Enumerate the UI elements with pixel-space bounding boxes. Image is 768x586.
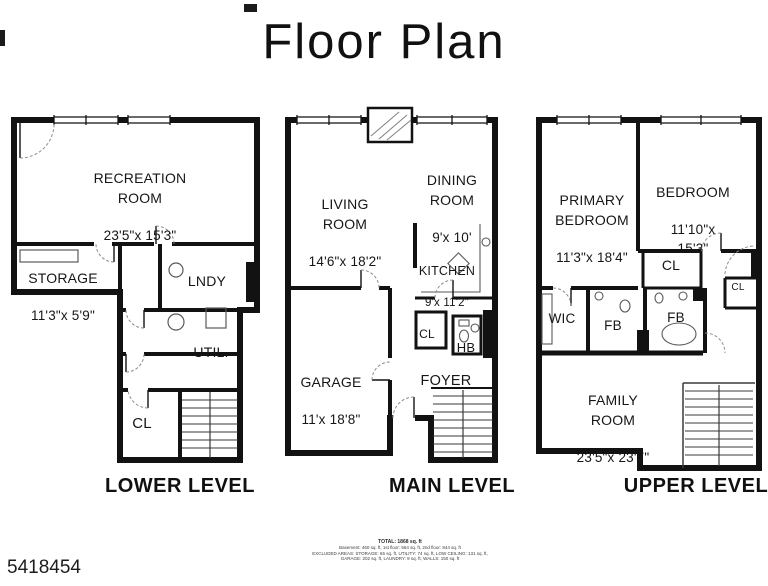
room-label-cl-lower: CL [132, 416, 152, 431]
main-level-label: MAIN LEVEL [389, 475, 515, 498]
room-label-living: LIVING ROOM 14'6"x 18'2" [309, 176, 382, 289]
upper-level-plan: PRIMARY BEDROOM 11'3"x 18'4" BEDROOM 11'… [533, 106, 765, 504]
wall-chase [246, 262, 257, 302]
room-label-wic: WIC [549, 311, 576, 326]
chimney [368, 108, 412, 142]
room-label-hb: HB [457, 340, 475, 355]
windows [54, 115, 170, 125]
excluded-areas-line-2: GARAGE: 202 sq. ft, LAUNDRY: 9 sq. ft, W… [30, 556, 768, 562]
page-title: Floor Plan [0, 14, 768, 70]
room-label-fb2: FB [667, 310, 685, 325]
room-label-cl-main: CL [419, 327, 435, 342]
stairs [182, 392, 238, 458]
wall-chase [483, 310, 495, 358]
room-label-primary: PRIMARY BEDROOM 11'3"x 18'4" [555, 172, 629, 285]
room-label-storage: STORAGE 11'3"x 5'9" [28, 250, 98, 343]
area-summary: TOTAL: 1868 sq. ft Basement: 460 sq. ft,… [30, 539, 768, 562]
room-label-lndy: LNDY [188, 274, 226, 289]
room-label-family: FAMILY ROOM 23'5"x 23'7" [577, 372, 650, 485]
upper-level-label: UPPER LEVEL [624, 475, 768, 498]
lower-level-plan: RECREATION ROOM 23'5"x 15'3" STORAGE 11'… [8, 112, 260, 504]
room-label-util: UTIL. [193, 345, 228, 360]
floor-plan-page: Floor Plan [0, 0, 768, 586]
listing-number: 5418454 [7, 557, 81, 579]
room-label-recreation: RECREATION ROOM 23'5"x 15'3" [94, 150, 187, 263]
front-door-gap [393, 414, 415, 423]
room-label-garage: GARAGE 11'x 18'8" [300, 354, 361, 447]
scan-artifact-top [244, 4, 257, 12]
room-label-cl-bedroom: CL [662, 258, 680, 273]
stairs [433, 390, 493, 458]
main-level-plan: LIVING ROOM 14'6"x 18'2" DINING ROOM 9'x… [283, 106, 505, 504]
room-label-cl-hall: CL [731, 282, 744, 293]
lower-level-label: LOWER LEVEL [105, 475, 255, 498]
stairs [683, 383, 755, 468]
room-label-kitchen: KITCHEN 9'x 11'2" [419, 246, 475, 328]
room-label-foyer: FOYER [421, 374, 472, 389]
room-label-fb1: FB [604, 318, 622, 333]
